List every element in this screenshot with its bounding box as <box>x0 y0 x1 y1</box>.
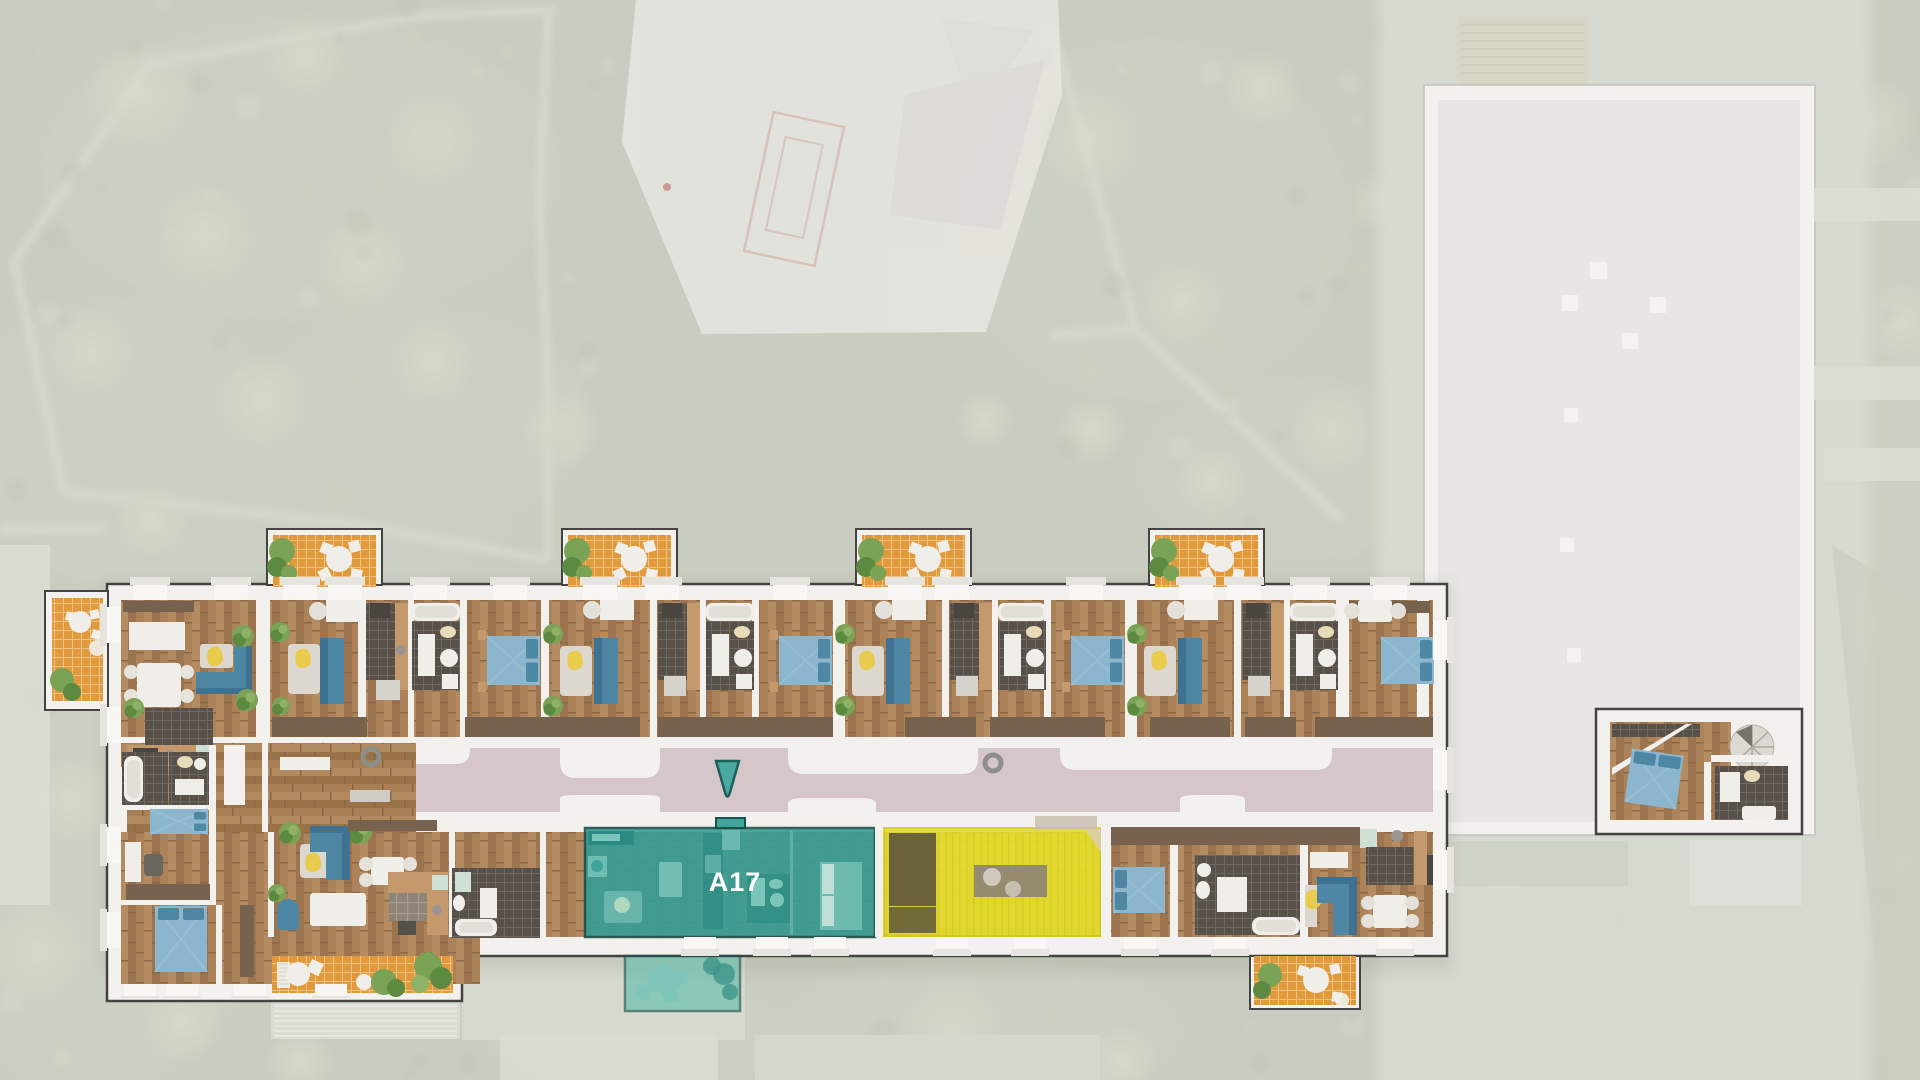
svg-text:A17: A17 <box>709 867 762 897</box>
